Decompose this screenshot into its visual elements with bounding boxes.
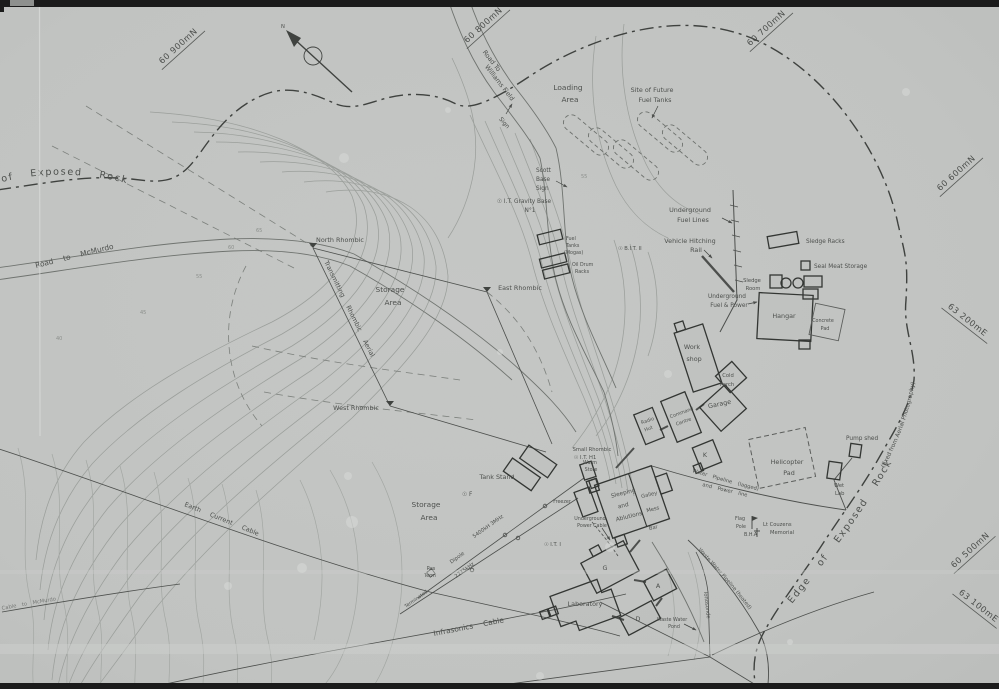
scan-artifacts <box>0 0 999 689</box>
paper-grain <box>0 0 999 689</box>
scanned-map: N Road To Williams Field Sign Loading Ar… <box>0 0 999 689</box>
map-canvas: N Road To Williams Field Sign Loading Ar… <box>0 0 999 689</box>
